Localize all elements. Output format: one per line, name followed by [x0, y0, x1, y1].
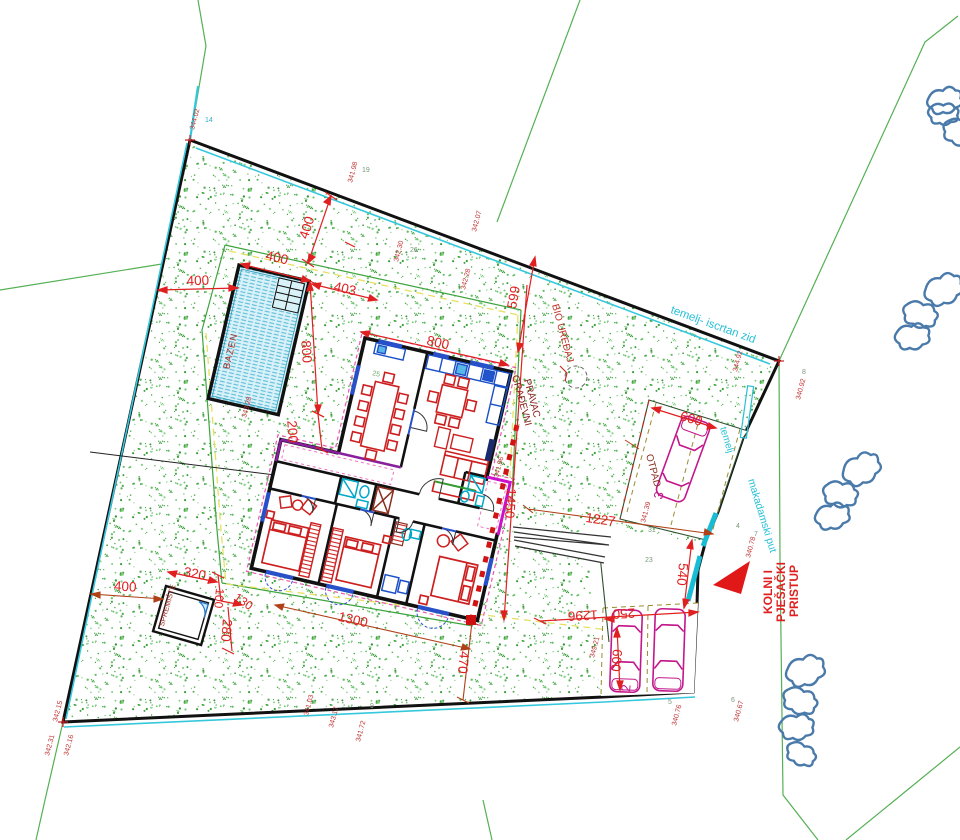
svg-text:540: 540	[674, 563, 691, 587]
svg-text:26: 26	[410, 247, 418, 254]
svg-text:7: 7	[754, 531, 758, 538]
svg-text:14: 14	[205, 117, 213, 124]
svg-text:8: 8	[802, 369, 806, 376]
svg-text:400: 400	[114, 578, 137, 594]
svg-text:100: 100	[211, 588, 227, 609]
svg-text:200: 200	[284, 420, 301, 444]
svg-text:23: 23	[645, 557, 653, 564]
svg-text:800: 800	[298, 340, 315, 364]
svg-text:4: 4	[736, 523, 740, 530]
svg-text:KOLNI I: KOLNI I	[761, 570, 775, 614]
svg-text:PJEŠAČKI: PJEŠAČKI	[773, 562, 788, 622]
svg-text:5: 5	[668, 699, 672, 706]
svg-text:600: 600	[608, 649, 625, 673]
svg-text:250: 250	[612, 605, 635, 621]
svg-text:6: 6	[731, 697, 735, 704]
svg-text:1296: 1296	[567, 607, 598, 624]
svg-text:19: 19	[362, 167, 370, 174]
svg-text:9: 9	[370, 703, 374, 710]
svg-text:470: 470	[455, 651, 472, 675]
svg-text:280: 280	[218, 619, 235, 643]
svg-text:1450: 1450	[502, 488, 519, 519]
svg-text:PRISTUP: PRISTUP	[787, 565, 801, 617]
svg-text:31: 31	[648, 527, 656, 534]
svg-text:400: 400	[186, 273, 209, 289]
